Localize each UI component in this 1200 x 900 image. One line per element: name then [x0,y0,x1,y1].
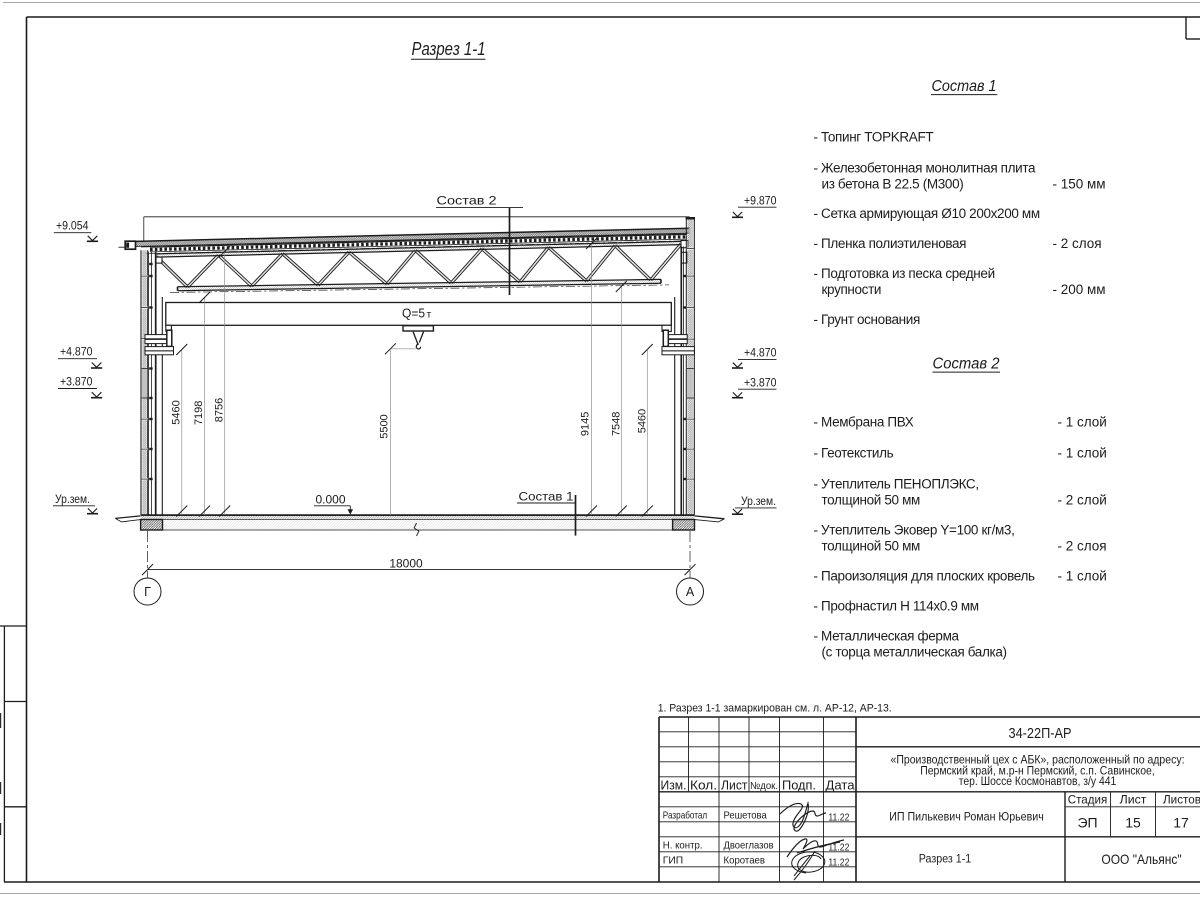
svg-text:34-22П-АР: 34-22П-АР [1009,725,1072,742]
svg-text:- Железобетонная монолитная п: - Железобетонная монолитная плита [814,160,1037,175]
svg-text:7548: 7548 [611,412,623,437]
svg-text:- Геотекстиль: - Геотекстиль [814,445,894,460]
svg-text:- Утеплитель Эковер Y=100 кг/м: - Утеплитель Эковер Y=100 кг/м3, [814,522,1015,537]
svg-text:7198: 7198 [193,401,205,426]
svg-text:+4.870: +4.870 [744,348,777,360]
svg-text:из бетона В 22.5 (М300): из бетона В 22.5 (М300) [822,176,964,191]
svg-text:5460: 5460 [636,409,648,434]
svg-text:- Профнастил Н 114x0.9 мм: - Профнастил Н 114x0.9 мм [814,598,979,613]
svg-text:Состав 1: Состав 1 [519,489,574,503]
svg-text:толщиной 50 мм: толщиной 50 мм [822,492,921,507]
svg-text:- Пленка полиэтиленовая: - Пленка полиэтиленовая [814,236,967,251]
svg-text:11.22: 11.22 [828,857,849,868]
svg-text:Q=5: Q=5 [402,306,425,321]
svg-text:- Мембрана ПВХ: - Мембрана ПВХ [814,414,914,429]
svg-text:Решетова: Решетова [724,811,767,822]
svg-text:Состав 1: Состав 1 [932,78,997,95]
svg-text:толщиной 50 мм: толщиной 50 мм [822,538,921,553]
svg-text:Двоеглазов: Двоеглазов [724,841,775,852]
svg-text:+3.870: +3.870 [744,377,777,389]
svg-text:- Грунт основания: - Грунт основания [814,312,920,327]
svg-text:- Топинг TOPKRAFT: - Топинг TOPKRAFT [814,129,934,144]
svg-text:№док.: №док. [750,781,778,792]
svg-text:Дата: Дата [826,777,856,792]
svg-text:15: 15 [1125,815,1141,831]
svg-text:Подп.: Подп. [782,777,816,792]
svg-text:Коротаев: Коротаев [724,856,766,867]
svg-text:Разрез 1-1: Разрез 1-1 [919,851,972,865]
svg-text:1. Разрез 1-1 замаркирован см.: 1. Разрез 1-1 замаркирован см. л. АР-12,… [658,703,892,715]
svg-text:Лист: Лист [721,777,748,792]
svg-text:Стадия: Стадия [1068,793,1108,807]
svg-text:- Утеплитель ПЕНОПЛЭКС,: - Утеплитель ПЕНОПЛЭКС, [814,476,979,491]
svg-text:- 1 слой: - 1 слой [1058,414,1107,429]
svg-text:Изм.: Изм. [661,777,687,792]
svg-text:+4.870: +4.870 [60,347,93,359]
svg-text:- Подготовка из песка средней: - Подготовка из песка средней [814,266,995,281]
svg-text:Кол.: Кол. [690,777,717,792]
svg-text:- 2 слой: - 2 слой [1058,492,1107,507]
svg-text:тер. Шоссе Космонавтов, з/у 44: тер. Шоссе Космонавтов, з/у 441 [959,774,1117,788]
svg-text:- 2 слоя: - 2 слоя [1053,236,1102,251]
svg-text:Состав 2: Состав 2 [437,194,497,208]
svg-text:Ур.зем.: Ур.зем. [55,494,90,506]
svg-text:+9.870: +9.870 [744,195,777,207]
svg-text:ИП Пилькевич Роман Юрьевич: ИП Пилькевич Роман Юрьевич [889,809,1044,823]
svg-text:11.22: 11.22 [828,812,849,823]
svg-text:А: А [686,585,695,599]
svg-text:17: 17 [1173,815,1189,831]
svg-text:ООО "Альянс": ООО "Альянс" [1101,852,1181,867]
svg-text:5460: 5460 [171,400,183,425]
svg-text:ЭП: ЭП [1077,815,1097,831]
svg-text:+3.870: +3.870 [60,376,93,388]
svg-text:Состав 2: Состав 2 [933,355,1000,372]
svg-text:Ур.зем.: Ур.зем. [741,496,776,508]
svg-text:Разрез 1-1: Разрез 1-1 [412,38,486,59]
svg-text:Разработал: Разработал [663,810,707,822]
svg-text:- Металлическая ферма: - Металлическая ферма [814,628,960,643]
svg-text:- 200 мм: - 200 мм [1053,282,1106,297]
svg-text:- 1 слой: - 1 слой [1058,568,1107,583]
svg-text:9145: 9145 [580,412,592,437]
svg-text:5500: 5500 [379,414,391,439]
svg-text:0.000: 0.000 [316,492,346,506]
svg-text:8756: 8756 [214,398,226,423]
svg-text:- 2 слоя: - 2 слоя [1058,538,1107,553]
svg-text:т: т [427,309,432,321]
svg-text:Лист: Лист [1120,793,1147,807]
svg-text:Листов: Листов [1163,793,1200,807]
svg-text:ГИП: ГИП [663,856,683,867]
svg-text:крупности: крупности [822,282,882,297]
svg-text:18000: 18000 [389,556,423,570]
svg-text:(с торца металлическая балка): (с торца металлическая балка) [822,644,1007,659]
svg-text:- 1 слой: - 1 слой [1058,445,1107,460]
svg-text:- 150 мм: - 150 мм [1053,176,1106,191]
svg-text:- Пароизоляция для плоских кро: - Пароизоляция для плоских кровель [814,568,1035,583]
svg-text:- Сетка армирующая Ø10 200x200: - Сетка армирующая Ø10 200x200 мм [814,206,1040,221]
svg-text:+9.054: +9.054 [56,221,89,233]
svg-text:Н. контр.: Н. контр. [663,841,703,852]
svg-text:Г: Г [144,585,151,599]
